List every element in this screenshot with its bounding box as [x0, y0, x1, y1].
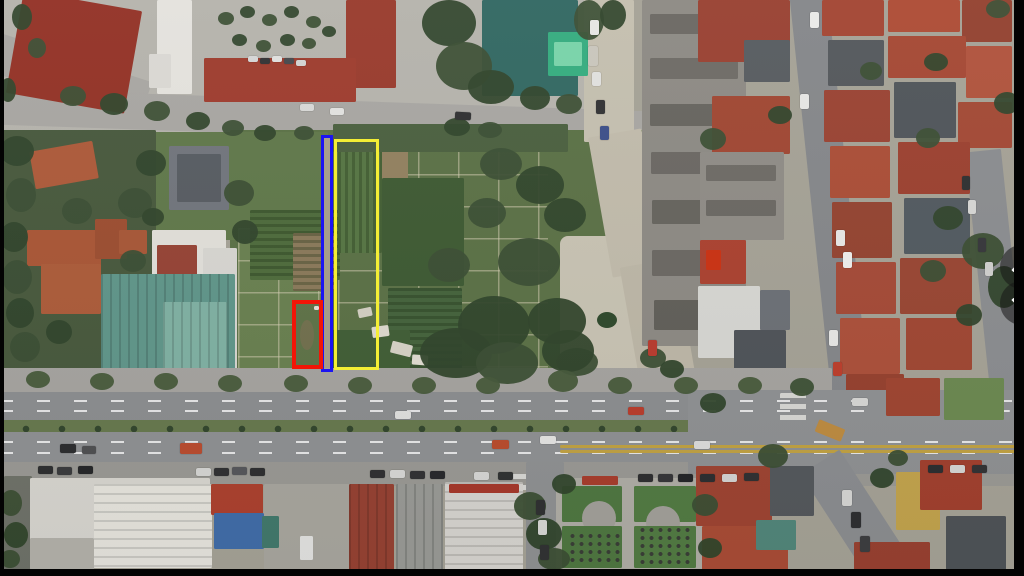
tree: [888, 450, 908, 466]
tree: [920, 260, 946, 282]
vehicle: [538, 520, 547, 535]
tree: [674, 377, 698, 394]
red-roof: [211, 484, 263, 515]
vehicle: [592, 72, 601, 86]
tree: [476, 377, 500, 394]
vehicle: [810, 12, 819, 28]
vehicle: [492, 440, 509, 449]
rowhouse-roof: [824, 90, 890, 142]
park-gate: [582, 476, 618, 485]
tree: [542, 330, 594, 372]
shop-building: [445, 482, 523, 570]
tree: [136, 150, 166, 176]
rowhouse-roof: [840, 318, 900, 374]
crosswalk: [780, 393, 806, 423]
vehicle: [38, 466, 53, 474]
vehicle: [300, 104, 314, 111]
vehicle: [296, 60, 306, 66]
warehouse-gray: [396, 484, 443, 570]
tree: [100, 93, 128, 115]
tree: [574, 0, 604, 40]
tree: [556, 94, 582, 114]
vehicle: [744, 473, 759, 481]
tree: [608, 377, 632, 394]
tree: [412, 377, 436, 394]
tree: [600, 0, 626, 30]
vehicle: [284, 58, 294, 64]
vehicle: [540, 436, 556, 444]
rowhouse-roof: [906, 318, 972, 370]
white-flat-roof: [94, 484, 212, 568]
school-building: [204, 58, 356, 102]
vehicle: [852, 398, 868, 406]
shop-sign: [449, 484, 519, 493]
tree: [142, 208, 164, 226]
tree: [916, 128, 940, 148]
temple-roof: [41, 264, 101, 314]
tree: [218, 375, 242, 392]
tree: [218, 12, 234, 25]
rowhouse-roof: [822, 0, 884, 36]
lane-dash: [0, 441, 1024, 443]
red-roof-ne: [886, 378, 940, 416]
yellow-center-line: [560, 450, 1024, 453]
tree: [10, 332, 40, 362]
vehicle: [860, 536, 870, 552]
vehicle: [540, 545, 549, 560]
tree: [548, 370, 578, 392]
rowhouse-roof: [830, 146, 890, 198]
vehicle: [430, 471, 445, 479]
vehicle: [588, 46, 598, 66]
vehicle: [536, 500, 545, 515]
vehicle: [82, 446, 96, 454]
vehicle: [596, 100, 605, 114]
vehicle: [395, 411, 411, 419]
dark-roof-se: [946, 516, 1006, 570]
vehicle: [260, 58, 270, 64]
vehicle: [78, 466, 93, 474]
vehicle: [950, 465, 965, 473]
plot-outline-yellow: [334, 139, 379, 370]
tree: [468, 198, 506, 228]
rowhouse-roof: [898, 142, 970, 194]
tree: [26, 371, 50, 388]
sports-court-inner: [554, 42, 582, 66]
tree: [428, 248, 470, 282]
tree: [768, 106, 792, 124]
tree: [552, 474, 576, 494]
vehicle: [600, 126, 609, 140]
corner-dark-roof: [770, 466, 814, 516]
tree: [256, 40, 271, 52]
tree: [498, 238, 560, 286]
tree: [738, 377, 762, 394]
vehicle: [851, 512, 861, 528]
vehicle: [678, 474, 693, 482]
vehicle: [455, 112, 471, 121]
tree: [222, 120, 244, 136]
tree: [544, 198, 586, 232]
viewer-frame-bottom: [0, 569, 1024, 576]
tree: [924, 53, 948, 71]
vehicle: [638, 474, 653, 482]
vehicle: [833, 362, 842, 376]
park-graves: [638, 526, 694, 566]
yellow-center-line: [560, 445, 1024, 448]
vehicle: [248, 56, 258, 62]
warehouse-red: [349, 484, 394, 570]
white-building: [149, 54, 171, 88]
tree: [520, 86, 550, 110]
tree: [144, 101, 170, 121]
aerial-photo: [0, 0, 1024, 576]
tree: [240, 6, 255, 18]
tree: [660, 360, 684, 378]
tree: [120, 250, 146, 272]
vehicle: [700, 474, 715, 482]
viewer-frame-right: [1014, 0, 1024, 576]
green-roof-ne: [944, 378, 1004, 420]
rowhouse-roof: [888, 0, 960, 32]
tree: [986, 0, 1010, 18]
rowhouse-roof: [836, 262, 896, 314]
tree: [6, 178, 36, 212]
tree: [422, 0, 476, 46]
tree: [284, 375, 308, 392]
tree: [302, 38, 316, 49]
tree: [306, 16, 321, 28]
vehicle: [330, 108, 344, 115]
plot-outline-red: [292, 300, 323, 369]
tree: [700, 128, 726, 150]
tree: [480, 148, 522, 180]
tree: [698, 538, 722, 558]
tree: [468, 70, 514, 104]
vehicle: [628, 407, 644, 415]
vehicle: [214, 468, 229, 476]
tree: [224, 180, 254, 206]
lane-dash: [0, 410, 1010, 412]
tree: [28, 38, 46, 58]
tree: [294, 126, 314, 140]
tree: [860, 62, 882, 80]
tree: [154, 373, 178, 390]
white-truck: [300, 536, 313, 560]
tree: [956, 304, 982, 326]
park-graves: [568, 532, 622, 566]
blue-roof: [214, 513, 264, 549]
teal-container: [262, 516, 279, 548]
tree: [2, 260, 32, 294]
vehicle: [962, 176, 970, 190]
tree: [12, 4, 32, 30]
vietnam-flag: [706, 250, 721, 270]
vehicle: [60, 444, 76, 453]
vehicle: [836, 230, 845, 246]
vehicle: [800, 94, 809, 109]
vehicle: [658, 474, 673, 482]
tree: [758, 444, 788, 468]
tree: [692, 494, 718, 516]
tree: [790, 378, 814, 396]
vehicle: [57, 467, 72, 475]
rowhouse-roof: [760, 290, 790, 330]
vehicle: [694, 441, 710, 449]
construction-void: [706, 165, 776, 181]
rowhouse-roof: [744, 40, 790, 82]
vehicle: [250, 468, 265, 476]
vehicle: [722, 474, 737, 482]
rowhouse-roof: [712, 96, 790, 154]
gray-annex: [30, 538, 94, 570]
tree: [444, 118, 470, 136]
vehicle: [196, 468, 211, 476]
tree: [348, 377, 372, 394]
viewer-frame-left: [0, 0, 4, 576]
vehicle: [272, 56, 282, 62]
tree: [186, 112, 210, 130]
tree: [232, 34, 247, 46]
tree: [232, 220, 258, 244]
vehicle: [843, 252, 852, 268]
vehicle: [978, 238, 986, 252]
rowhouse-roof: [966, 46, 1012, 98]
vehicle: [232, 467, 247, 475]
vehicle: [972, 465, 987, 473]
temple-roof: [27, 230, 101, 266]
tree: [254, 125, 276, 141]
tree: [280, 34, 295, 46]
lane-dash: [0, 400, 1024, 402]
corner-teal-roof: [756, 520, 796, 550]
teal-warehouse-light: [163, 302, 227, 374]
construction-void: [706, 200, 776, 216]
vehicle: [590, 20, 599, 35]
vehicle: [829, 330, 838, 346]
vehicle: [985, 262, 993, 276]
tree: [4, 522, 28, 548]
tree: [933, 206, 963, 230]
tree: [262, 14, 277, 26]
tree: [870, 468, 894, 488]
tree: [60, 86, 86, 106]
tree: [90, 373, 114, 390]
lone-tree-vacant-lot: [597, 312, 617, 328]
tree: [700, 393, 726, 413]
tree: [0, 222, 28, 252]
vehicle: [410, 471, 425, 479]
vehicle: [842, 490, 852, 506]
tree: [322, 26, 336, 37]
tree: [6, 298, 34, 328]
vehicle: [928, 465, 943, 473]
tree: [46, 320, 72, 344]
tree: [284, 6, 299, 18]
vehicle: [648, 340, 657, 356]
villa-gray-roof: [177, 154, 221, 202]
tree: [0, 136, 34, 166]
vehicle: [180, 443, 202, 454]
tree: [478, 122, 502, 138]
vehicle: [390, 470, 405, 478]
vehicle: [474, 472, 489, 480]
tree: [62, 198, 92, 224]
vehicle: [498, 472, 513, 480]
vehicle: [968, 200, 976, 214]
photo-viewer: [0, 0, 1024, 576]
vehicle: [370, 470, 385, 478]
